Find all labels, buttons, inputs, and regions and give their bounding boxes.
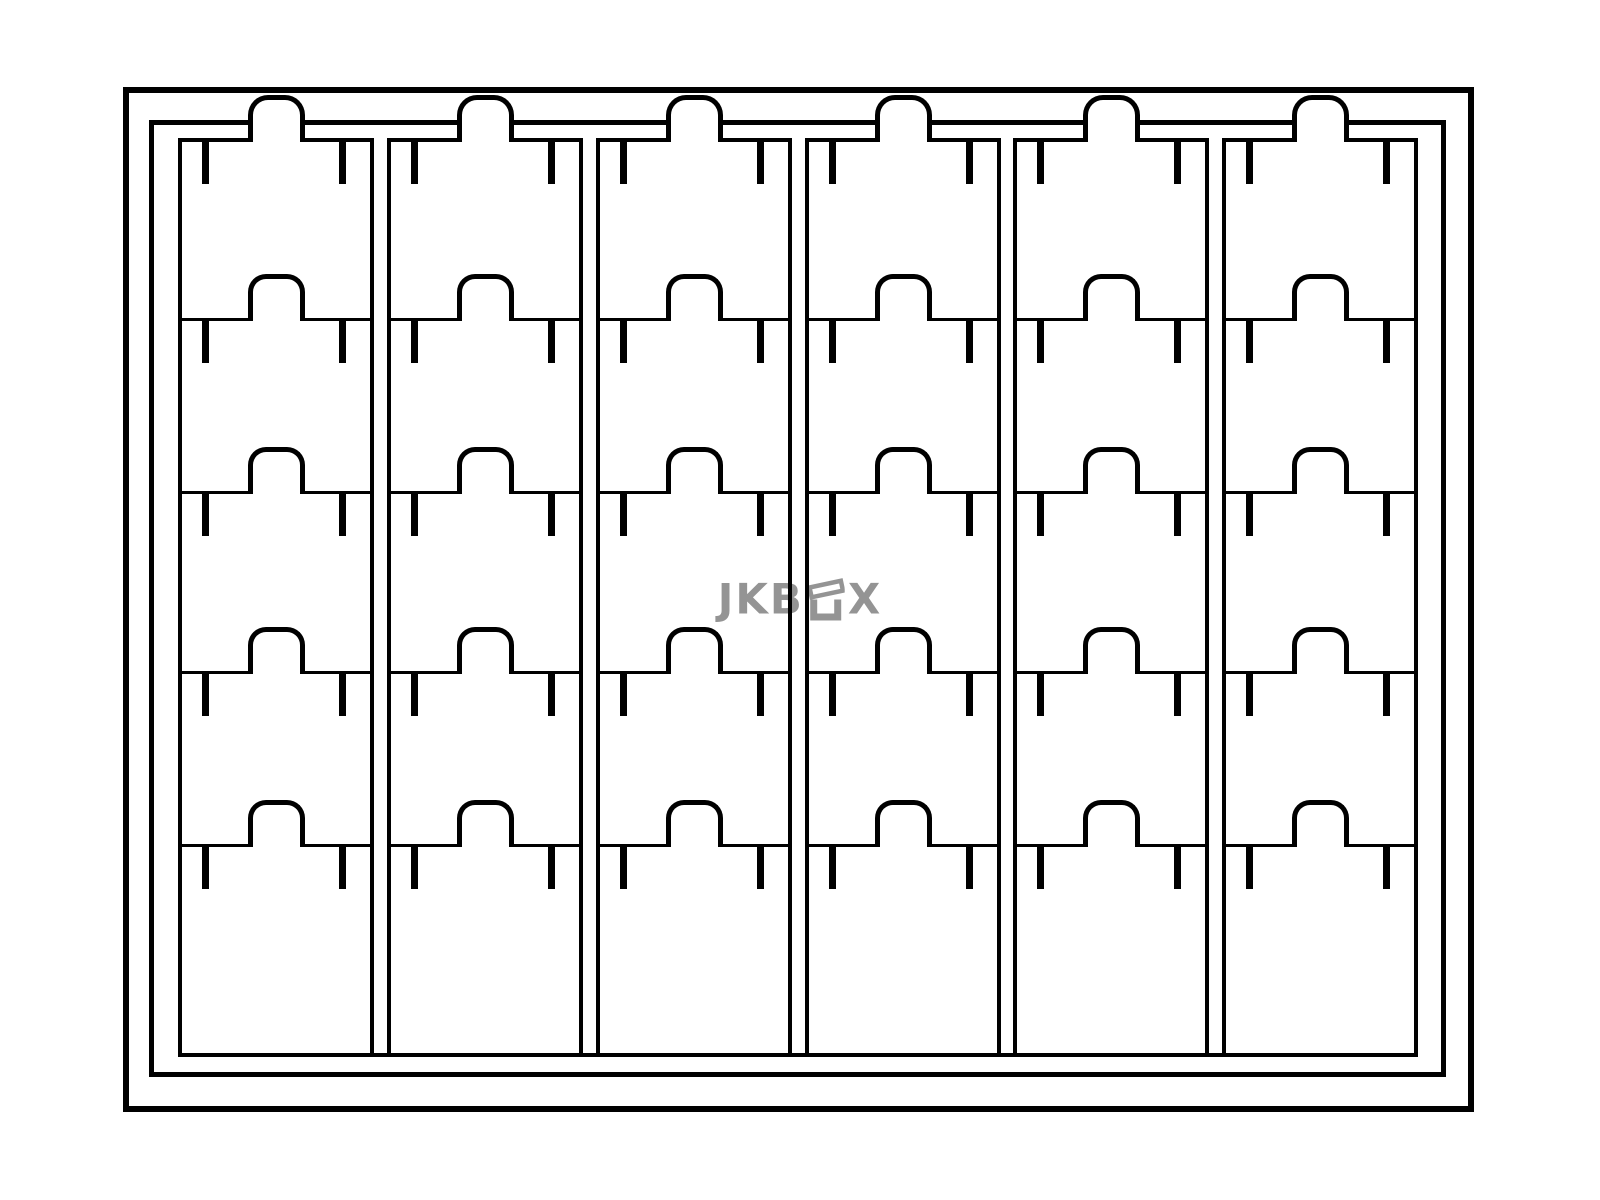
card-top-edge-right-segment <box>720 671 793 674</box>
card-top-edge-left-segment <box>178 138 251 142</box>
card-top-edge-right-segment <box>720 491 793 494</box>
card-tab-handle <box>1083 627 1140 674</box>
card-notch-right <box>1174 674 1181 716</box>
card-top-edge-left-segment <box>387 318 460 321</box>
card-top-edge-right-segment <box>1137 138 1210 142</box>
card-tab-handle <box>666 447 723 494</box>
card-top-edge-left-segment <box>387 491 460 494</box>
card-tab-handle <box>875 274 932 321</box>
card-top-edge-left-segment <box>387 844 460 847</box>
card-notch-left <box>1037 494 1044 536</box>
card-notch-right <box>1383 494 1390 536</box>
card-notch-right <box>757 847 764 889</box>
card-notch-left <box>202 847 209 889</box>
card-top-edge-left-segment <box>596 138 669 142</box>
card-notch-left <box>620 142 627 184</box>
card-notch-left <box>1246 674 1253 716</box>
card-notch-left <box>1037 321 1044 363</box>
card-tab-handle <box>875 627 932 674</box>
card-top-edge-right-segment <box>1346 844 1419 847</box>
card-notch-left <box>620 674 627 716</box>
card-notch-right <box>1383 142 1390 184</box>
card-top-edge-right-segment <box>929 671 1002 674</box>
card-top-edge-left-segment <box>805 491 878 494</box>
card-top-edge-left-segment <box>805 844 878 847</box>
card-tab-handle <box>666 800 723 847</box>
diagram-canvas: JKB X <box>0 0 1600 1200</box>
card-tab-handle <box>248 447 305 494</box>
card-top-edge-left-segment <box>1222 671 1295 674</box>
card-top-edge-right-segment <box>1346 671 1419 674</box>
card-notch-right <box>966 321 973 363</box>
card-notch-right <box>339 321 346 363</box>
card-top-edge-right-segment <box>929 491 1002 494</box>
card-tab-handle <box>875 800 932 847</box>
card-top-edge-right-segment <box>720 318 793 321</box>
card-notch-left <box>202 494 209 536</box>
card-top-edge-left-segment <box>1013 491 1086 494</box>
card-notch-right <box>966 847 973 889</box>
card-tab-handle <box>1292 447 1349 494</box>
card-notch-right <box>966 142 973 184</box>
card-tab-handle <box>666 627 723 674</box>
card-top-edge-right-segment <box>929 318 1002 321</box>
card-notch-left <box>1037 674 1044 716</box>
card-notch-right <box>966 494 973 536</box>
column-top-tab-handle <box>1292 95 1349 142</box>
card-top-edge-right-segment <box>511 844 584 847</box>
card-top-edge-right-segment <box>1346 491 1419 494</box>
column-top-tab-handle <box>248 95 305 142</box>
card-top-edge-left-segment <box>178 844 251 847</box>
card-tab-handle <box>666 274 723 321</box>
card-notch-right <box>1174 321 1181 363</box>
card-tab-handle <box>248 627 305 674</box>
card-notch-right <box>757 321 764 363</box>
card-notch-right <box>757 494 764 536</box>
card-notch-left <box>411 494 418 536</box>
card-notch-right <box>757 142 764 184</box>
card-top-edge-left-segment <box>1222 844 1295 847</box>
card-notch-left <box>1037 847 1044 889</box>
card-notch-left <box>829 847 836 889</box>
column-top-tab-handle <box>666 95 723 142</box>
card-notch-left <box>829 674 836 716</box>
card-tab-handle <box>457 447 514 494</box>
card-top-edge-right-segment <box>929 138 1002 142</box>
card-notch-left <box>202 142 209 184</box>
card-notch-left <box>620 494 627 536</box>
card-top-edge-left-segment <box>1013 671 1086 674</box>
card-notch-left <box>411 674 418 716</box>
card-tab-handle <box>1083 800 1140 847</box>
card-tab-handle <box>1083 447 1140 494</box>
card-notch-left <box>202 321 209 363</box>
card-top-edge-right-segment <box>302 138 375 142</box>
card-notch-right <box>339 142 346 184</box>
card-top-edge-left-segment <box>805 318 878 321</box>
column-top-tab-handle <box>457 95 514 142</box>
column-top-tab-handle <box>875 95 932 142</box>
card-notch-left <box>202 674 209 716</box>
card-tab-handle <box>1292 800 1349 847</box>
card-top-edge-right-segment <box>511 138 584 142</box>
card-top-edge-right-segment <box>720 844 793 847</box>
card-notch-right <box>1174 494 1181 536</box>
card-notch-right <box>548 321 555 363</box>
card-top-edge-left-segment <box>596 844 669 847</box>
card-notch-left <box>1246 321 1253 363</box>
card-top-edge-right-segment <box>511 318 584 321</box>
card-tab-handle <box>248 800 305 847</box>
card-notch-right <box>548 494 555 536</box>
columns-base-line <box>178 1053 1418 1057</box>
card-tab-handle <box>457 800 514 847</box>
card-tab-handle <box>875 447 932 494</box>
card-top-edge-left-segment <box>387 138 460 142</box>
card-notch-left <box>620 321 627 363</box>
card-top-edge-left-segment <box>1222 138 1295 142</box>
card-top-edge-left-segment <box>1222 318 1295 321</box>
card-tab-handle <box>1292 274 1349 321</box>
card-notch-right <box>339 847 346 889</box>
card-top-edge-left-segment <box>178 318 251 321</box>
card-top-edge-right-segment <box>302 844 375 847</box>
card-top-edge-right-segment <box>511 671 584 674</box>
card-notch-left <box>1246 847 1253 889</box>
card-notch-left <box>411 321 418 363</box>
card-top-edge-left-segment <box>178 491 251 494</box>
column-top-tab-handle <box>1083 95 1140 142</box>
card-top-edge-right-segment <box>511 491 584 494</box>
card-notch-right <box>1174 847 1181 889</box>
card-notch-right <box>1383 321 1390 363</box>
card-notch-right <box>548 674 555 716</box>
card-top-edge-left-segment <box>596 671 669 674</box>
card-notch-right <box>548 847 555 889</box>
card-notch-right <box>339 674 346 716</box>
card-notch-left <box>829 494 836 536</box>
card-notch-right <box>1174 142 1181 184</box>
card-notch-right <box>966 674 973 716</box>
card-columns-layer <box>0 0 1600 1200</box>
card-notch-left <box>411 847 418 889</box>
card-top-edge-right-segment <box>1346 318 1419 321</box>
card-top-edge-right-segment <box>1137 844 1210 847</box>
card-top-edge-left-segment <box>1013 318 1086 321</box>
card-top-edge-left-segment <box>387 671 460 674</box>
card-tab-handle <box>457 274 514 321</box>
card-top-edge-left-segment <box>596 491 669 494</box>
card-notch-right <box>339 494 346 536</box>
card-notch-left <box>829 142 836 184</box>
card-tab-handle <box>457 627 514 674</box>
card-top-edge-left-segment <box>805 138 878 142</box>
card-top-edge-right-segment <box>929 844 1002 847</box>
card-notch-right <box>1383 847 1390 889</box>
card-top-edge-right-segment <box>302 671 375 674</box>
card-top-edge-left-segment <box>1013 844 1086 847</box>
card-top-edge-right-segment <box>1137 318 1210 321</box>
card-notch-left <box>620 847 627 889</box>
card-top-edge-right-segment <box>302 318 375 321</box>
card-top-edge-left-segment <box>1013 138 1086 142</box>
card-notch-left <box>1037 142 1044 184</box>
card-top-edge-right-segment <box>302 491 375 494</box>
card-tab-handle <box>248 274 305 321</box>
card-notch-left <box>411 142 418 184</box>
card-top-edge-left-segment <box>1222 491 1295 494</box>
card-tab-handle <box>1292 627 1349 674</box>
card-tab-handle <box>1083 274 1140 321</box>
card-top-edge-left-segment <box>596 318 669 321</box>
card-top-edge-right-segment <box>720 138 793 142</box>
card-notch-left <box>1246 494 1253 536</box>
card-notch-right <box>1383 674 1390 716</box>
card-top-edge-right-segment <box>1137 491 1210 494</box>
card-notch-left <box>829 321 836 363</box>
card-notch-right <box>548 142 555 184</box>
card-top-edge-left-segment <box>178 671 251 674</box>
card-top-edge-right-segment <box>1346 138 1419 142</box>
card-notch-right <box>757 674 764 716</box>
card-top-edge-right-segment <box>1137 671 1210 674</box>
card-top-edge-left-segment <box>805 671 878 674</box>
card-notch-left <box>1246 142 1253 184</box>
